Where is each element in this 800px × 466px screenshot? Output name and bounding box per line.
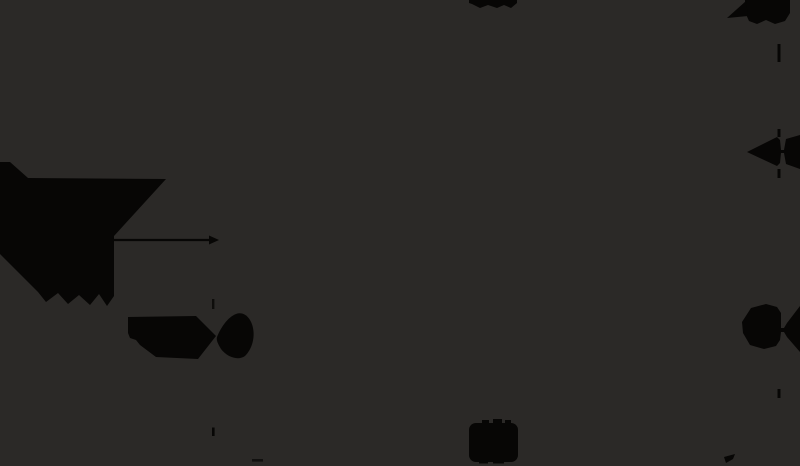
right-extension-dashed-line-dash-4	[778, 389, 781, 398]
bottom-center-label-blob	[469, 423, 518, 462]
top-right-label-blob	[745, 0, 790, 24]
right-extension-dashed-line-dash-1	[778, 44, 781, 62]
technical-drawing-viewport	[0, 0, 800, 466]
bottom-center-smudge	[252, 459, 263, 462]
bottom-center-label-bump-2	[493, 419, 502, 425]
extension-tick-center-lower	[212, 428, 215, 437]
bottom-center-label-bump-3	[505, 420, 511, 425]
double-arrow-right-lower	[742, 304, 800, 352]
bottom-center-label-bump-5	[493, 460, 504, 464]
bottom-center-label-bump-1	[482, 420, 489, 425]
bowtie-arrow-left-east-half	[217, 313, 254, 358]
technical-drawing-canvas	[0, 0, 800, 466]
double-arrow-right-middle	[747, 135, 800, 169]
bottom-right-small-mark	[724, 454, 735, 463]
bottom-center-label-bump-4	[479, 460, 488, 464]
solid-wedge-shape	[0, 162, 166, 306]
top-center-label-blob	[469, 0, 517, 8]
extension-dash-center-upper	[212, 299, 214, 309]
top-right-arrow-protrusion	[727, 1, 748, 18]
dimension-arrowhead-right	[209, 236, 219, 245]
right-extension-dashed-line-dash-3	[778, 169, 781, 178]
bowtie-arrow-left-west-half	[128, 316, 216, 359]
right-extension-dashed-line-dash-2	[778, 129, 781, 137]
